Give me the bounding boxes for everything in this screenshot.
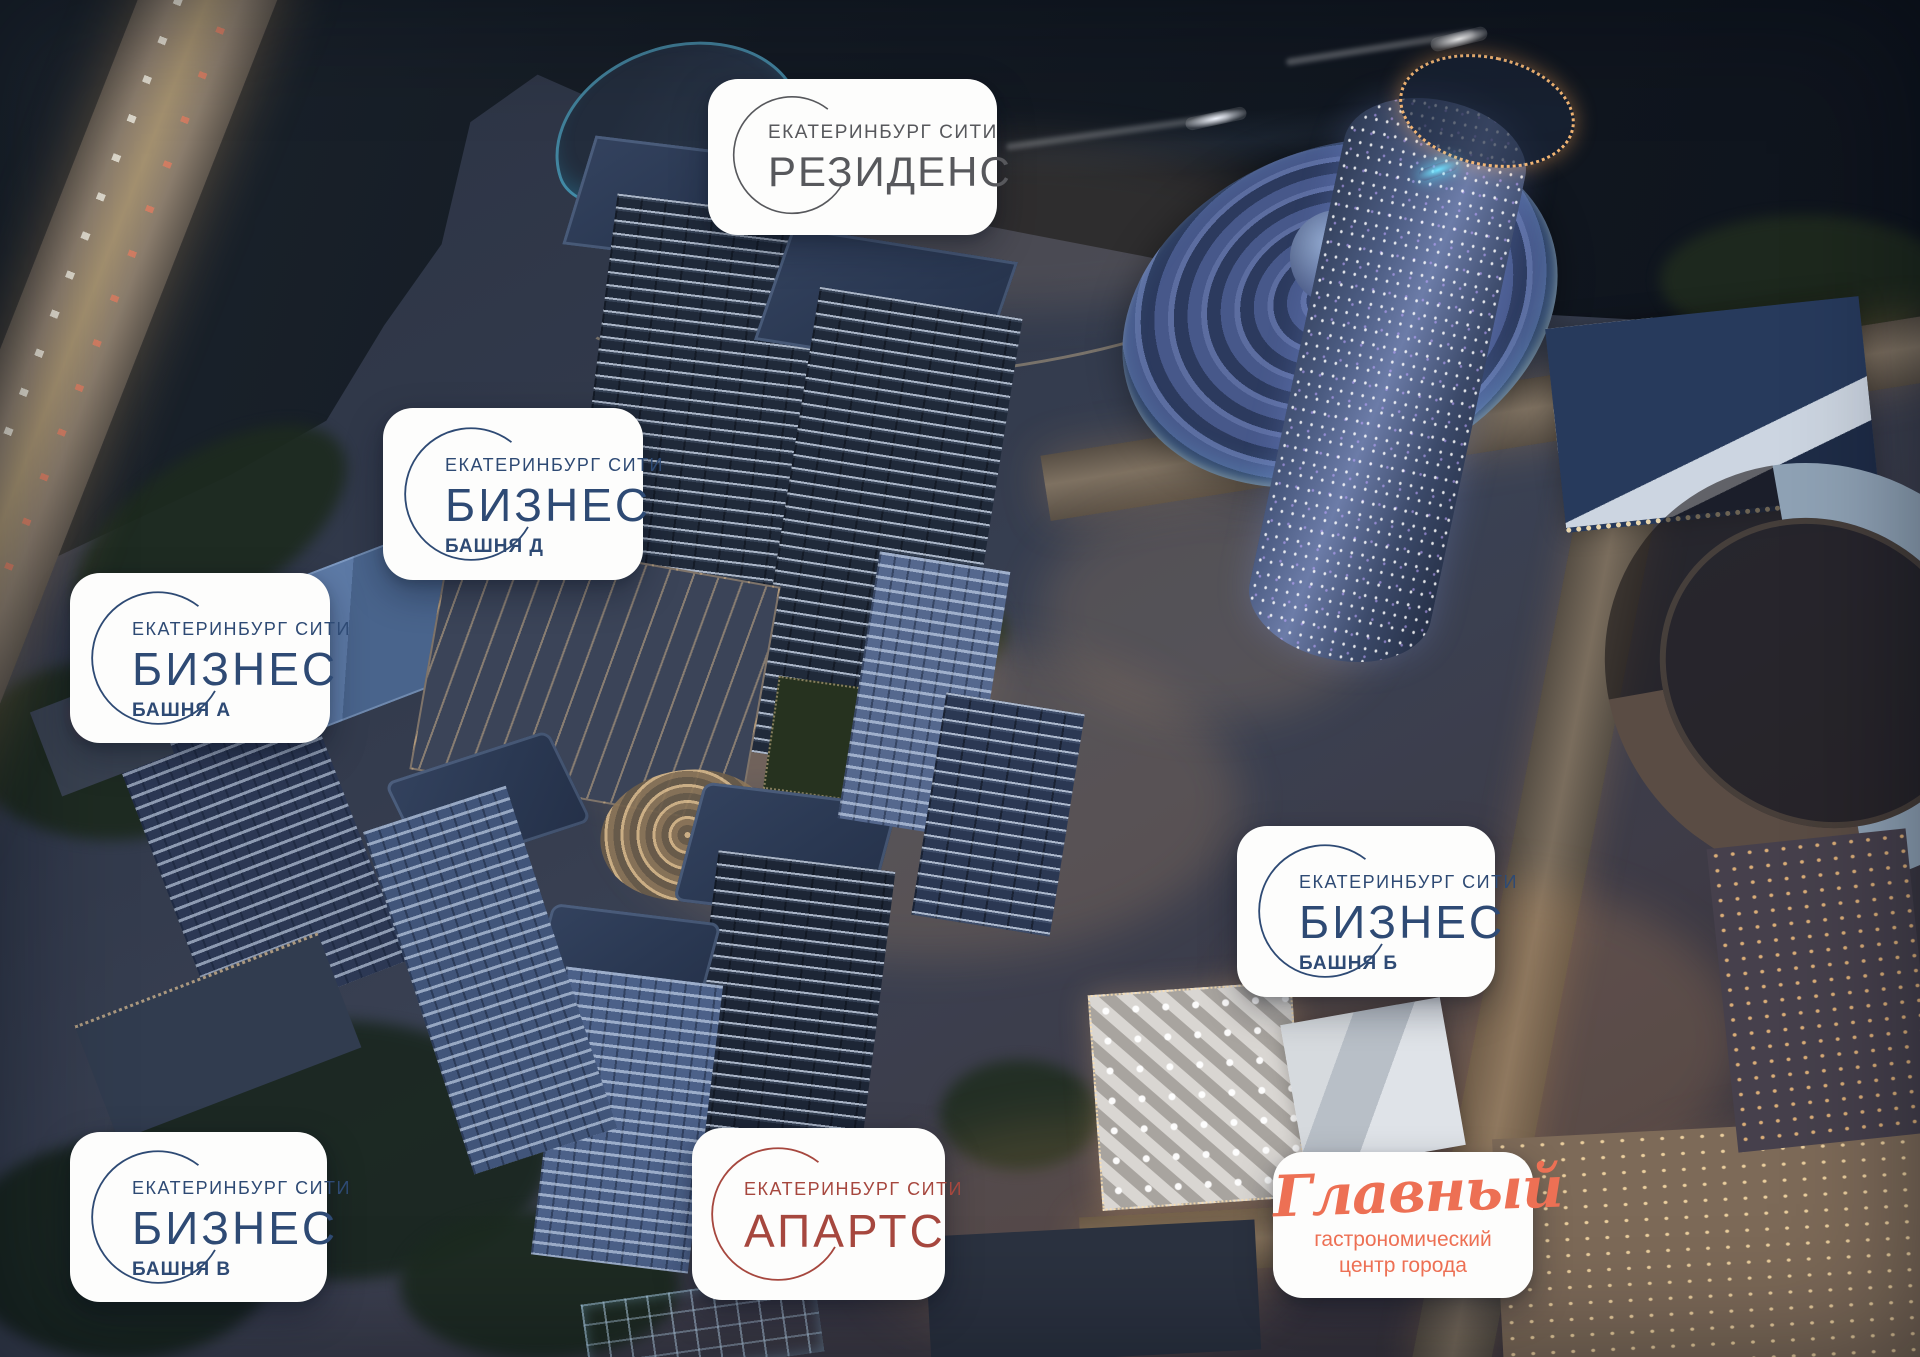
card-subtitle: БАШНЯ А (132, 701, 351, 720)
glavny-subtitle-line1: гастрономический (1273, 1227, 1533, 1253)
label-card-business-tower-a[interactable]: ЕКАТЕРИНБУРГ СИТИ БИЗНЕС БАШНЯ А (70, 573, 330, 743)
card-subtitle: БАШНЯ Д (445, 537, 664, 556)
card-title: АПАРТС (744, 1208, 934, 1254)
card-subtitle: БАШНЯ Б (1299, 954, 1518, 973)
card-title: БИЗНЕС (132, 1205, 351, 1251)
brick-tower-right (1707, 828, 1920, 1152)
card-title: БИЗНЕС (1299, 899, 1518, 945)
card-brand: ЕКАТЕРИНБУРГ СИТИ (445, 456, 664, 474)
label-card-business-tower-b[interactable]: ЕКАТЕРИНБУРГ СИТИ БИЗНЕС БАШНЯ Б (1237, 826, 1495, 997)
card-title: БИЗНЕС (445, 482, 664, 528)
label-card-business-tower-d[interactable]: ЕКАТЕРИНБУРГ СИТИ БИЗНЕС БАШНЯ Д (383, 408, 643, 580)
label-card-residence[interactable]: ЕКАТЕРИНБУРГ СИТИ РЕЗИДЕНС (708, 79, 997, 235)
glavny-subtitle-line2: центр города (1273, 1253, 1533, 1279)
card-brand: ЕКАТЕРИНБУРГ СИТИ (132, 620, 351, 638)
label-card-aparts[interactable]: ЕКАТЕРИНБУРГ СИТИ АПАРТС (692, 1128, 945, 1300)
glavny-logo: Главный (1272, 1159, 1534, 1225)
card-title: БИЗНЕС (132, 646, 351, 692)
aerial-masterplan: ЕКАТЕРИНБУРГ СИТИ РЕЗИДЕНС ЕКАТЕРИНБУРГ … (0, 0, 1920, 1357)
card-title: РЕЗИДЕНС (768, 151, 978, 193)
card-brand: ЕКАТЕРИНБУРГ СИТИ (1299, 873, 1518, 891)
card-brand: ЕКАТЕРИНБУРГ СИТИ (744, 1180, 934, 1198)
label-card-glavny[interactable]: Главный гастрономический центр города (1273, 1152, 1533, 1298)
dark-block-bottom-center (925, 1219, 1261, 1357)
label-card-business-tower-v[interactable]: ЕКАТЕРИНБУРГ СИТИ БИЗНЕС БАШНЯ В (70, 1132, 327, 1302)
card-brand: ЕКАТЕРИНБУРГ СИТИ (768, 123, 978, 142)
card-brand: ЕКАТЕРИНБУРГ СИТИ (132, 1179, 351, 1197)
card-subtitle: БАШНЯ В (132, 1260, 351, 1279)
white-pavilion (1280, 997, 1466, 1173)
